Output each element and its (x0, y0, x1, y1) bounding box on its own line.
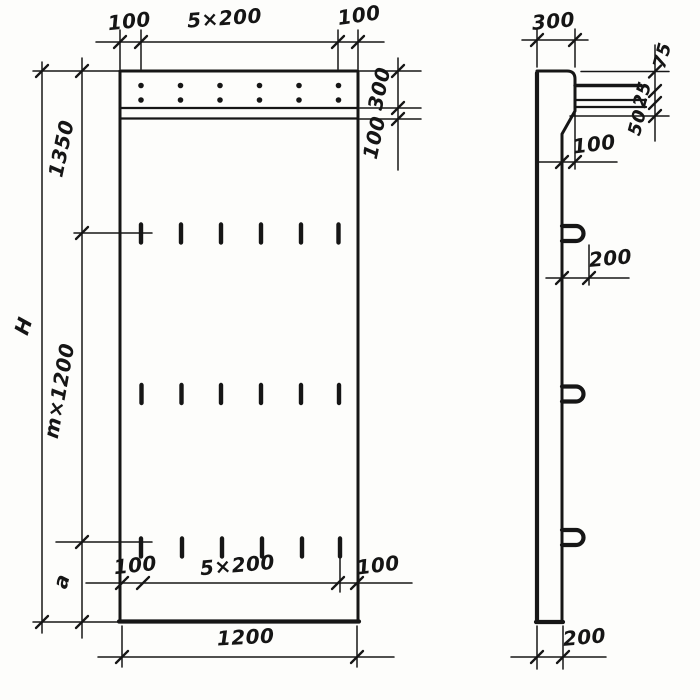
dim-module-height: m×1200 (39, 341, 79, 440)
side-step-dimension: 100 (538, 113, 617, 169)
dim-lower-offset: a (48, 571, 75, 591)
dim-wall-thickness: 200 (562, 623, 607, 651)
dim-chain-bottom: 50 (624, 107, 651, 138)
dim-bottom-spacing: 5×200 (199, 550, 276, 580)
side-loop-dimension: 200 (546, 244, 633, 285)
dim-chain-top: 75 (649, 40, 676, 71)
dim-overall-width: 1200 (216, 624, 275, 651)
dim-upper-offset: 1350 (43, 118, 78, 179)
dim-band-height: 300 (363, 65, 395, 112)
dim-flange-width: 300 (531, 7, 576, 35)
front-top-dimension: 100 5×200 100 (96, 0, 384, 69)
slot-marks-row-1 (74, 225, 339, 243)
front-left-dimension: H 1350 m×1200 a (9, 58, 120, 638)
dim-loop-reach: 200 (588, 244, 633, 272)
dim-strip-height: 100 (358, 114, 390, 161)
anchor-dots (138, 83, 341, 103)
slot-marks-row-3 (56, 539, 340, 557)
dim-bottom-left-margin: 100 (113, 551, 159, 579)
dim-top-spacing: 5×200 (186, 3, 262, 32)
front-width-dimension: 1200 (98, 624, 394, 667)
side-thickness-dimension: 200 (511, 623, 607, 669)
dim-step-offset: 100 (571, 130, 617, 159)
side-right-chain-dimension: 75 25 50 (570, 40, 676, 141)
slot-marks-row-2 (142, 385, 340, 403)
front-view: 100 5×200 100 300 100 (9, 0, 421, 667)
dim-top-left-margin: 100 (107, 7, 153, 35)
technical-drawing: 100 5×200 100 300 100 (0, 0, 700, 700)
side-flange-width-dimension: 300 (522, 7, 588, 67)
front-panel-outline (119, 71, 359, 622)
dim-bottom-right-margin: 100 (355, 551, 401, 580)
front-right-dimension: 300 100 (358, 58, 421, 170)
dim-top-right-margin: 100 (336, 0, 382, 30)
side-profile-outline (536, 71, 575, 622)
side-view: 300 75 25 50 100 (511, 7, 676, 669)
drawing-canvas: 100 5×200 100 300 100 (0, 0, 700, 700)
front-bottom-inner-dimension: 100 5×200 100 (86, 550, 412, 592)
dim-overall-height: H (9, 314, 37, 338)
